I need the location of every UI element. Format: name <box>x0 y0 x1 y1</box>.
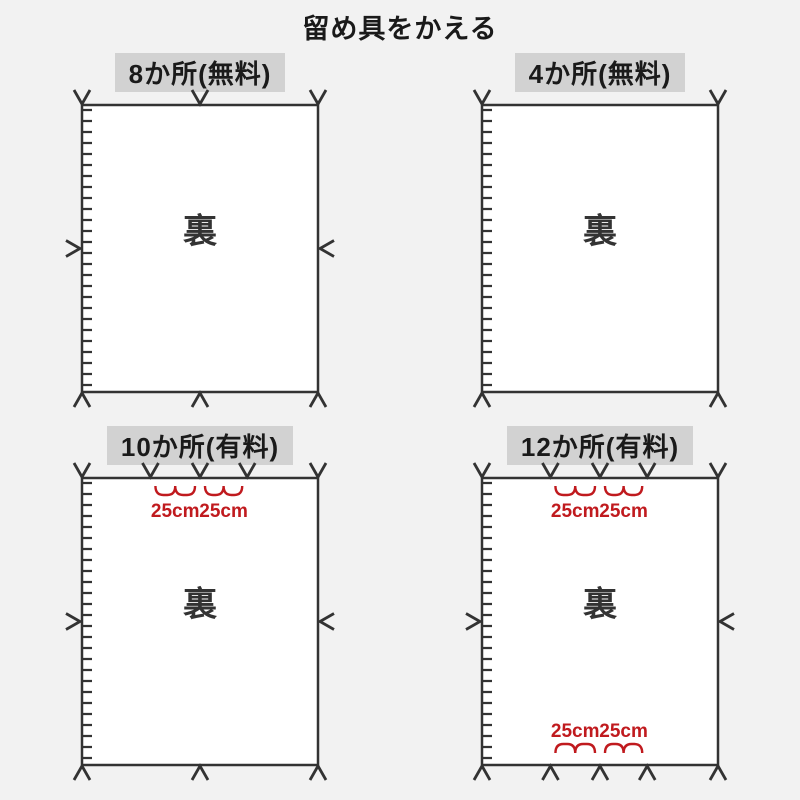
fastener-arrow-left <box>466 614 480 630</box>
fastener-arrow-right <box>720 614 734 630</box>
fastener-arrow-bottom <box>192 766 208 780</box>
panel-10-diagram: 裏25cm25cm <box>0 460 400 800</box>
panel-8-diagram: 裏 <box>0 87 400 427</box>
fastener-arrow-top <box>239 463 255 477</box>
fastener-arrow-top <box>474 463 490 477</box>
fastener-arrow-bottom <box>310 766 326 780</box>
fastener-arrow-left <box>66 241 80 257</box>
fastener-arrow-top <box>310 463 326 477</box>
back-side-label: 裏 <box>183 213 218 251</box>
fastener-arrow-top <box>310 90 326 104</box>
measure-label-top: 25cm <box>151 501 200 522</box>
12-spots-paid-svg: 裏25cm25cm25cm25cm <box>400 460 800 800</box>
back-side-label: 裏 <box>583 213 618 251</box>
fastener-arrow-bottom <box>74 393 90 407</box>
panel-8-label-wrap: 8か所(無料) <box>0 45 400 92</box>
panel-12-spots-paid: 12か所(有料) 裏25cm25cm25cm25cm <box>400 422 800 800</box>
measure-label-top: 25cm <box>551 501 600 522</box>
fastener-arrow-top <box>710 90 726 104</box>
fastener-options-diagram: 留め具をかえる 8か所(無料) 裏 4か所(無料) 裏 10か所(有料) 裏25… <box>0 0 800 800</box>
fastener-arrow-top <box>474 90 490 104</box>
fastener-arrow-top <box>710 463 726 477</box>
panel-8-spots-free: 8か所(無料) 裏 <box>0 45 400 423</box>
fastener-arrow-bottom <box>592 766 608 780</box>
fastener-arrow-top <box>142 463 158 477</box>
fastener-arrow-top <box>542 463 558 477</box>
panel-12-diagram: 裏25cm25cm25cm25cm <box>400 460 800 800</box>
fastener-arrow-top <box>74 90 90 104</box>
measure-label-top: 25cm <box>599 501 648 522</box>
fastener-arrow-right <box>320 614 334 630</box>
panel-4-spots-free: 4か所(無料) 裏 <box>400 45 800 423</box>
panel-4-label-wrap: 4か所(無料) <box>400 45 800 92</box>
measure-label-bottom: 25cm <box>551 721 600 742</box>
fastener-arrow-top <box>74 463 90 477</box>
fastener-arrow-left <box>66 614 80 630</box>
fastener-arrow-bottom <box>710 766 726 780</box>
panel-12-label-wrap: 12か所(有料) <box>400 422 800 465</box>
fastener-arrow-bottom <box>192 393 208 407</box>
panel-10-spots-paid: 10か所(有料) 裏25cm25cm <box>0 422 400 800</box>
page-title: 留め具をかえる <box>0 0 800 46</box>
fastener-arrow-top <box>592 463 608 477</box>
measure-label-bottom: 25cm <box>599 721 648 742</box>
fastener-arrow-bottom <box>474 393 490 407</box>
fastener-arrow-top <box>639 463 655 477</box>
fastener-arrow-bottom <box>542 766 558 780</box>
fastener-arrow-bottom <box>310 393 326 407</box>
back-side-label: 裏 <box>183 586 218 624</box>
fastener-arrow-top <box>192 463 208 477</box>
measure-label-top: 25cm <box>199 501 248 522</box>
fastener-arrow-right <box>320 241 334 257</box>
fastener-arrow-bottom <box>710 393 726 407</box>
10-spots-paid-svg: 裏25cm25cm <box>0 460 400 800</box>
fastener-arrow-top <box>192 90 208 104</box>
4-spots-free-svg: 裏 <box>400 87 800 427</box>
panel-4-diagram: 裏 <box>400 87 800 427</box>
fastener-arrow-bottom <box>639 766 655 780</box>
8-spots-free-svg: 裏 <box>0 87 400 427</box>
back-side-label: 裏 <box>583 586 618 624</box>
fastener-arrow-bottom <box>474 766 490 780</box>
panel-10-label-wrap: 10か所(有料) <box>0 422 400 465</box>
fastener-arrow-bottom <box>74 766 90 780</box>
